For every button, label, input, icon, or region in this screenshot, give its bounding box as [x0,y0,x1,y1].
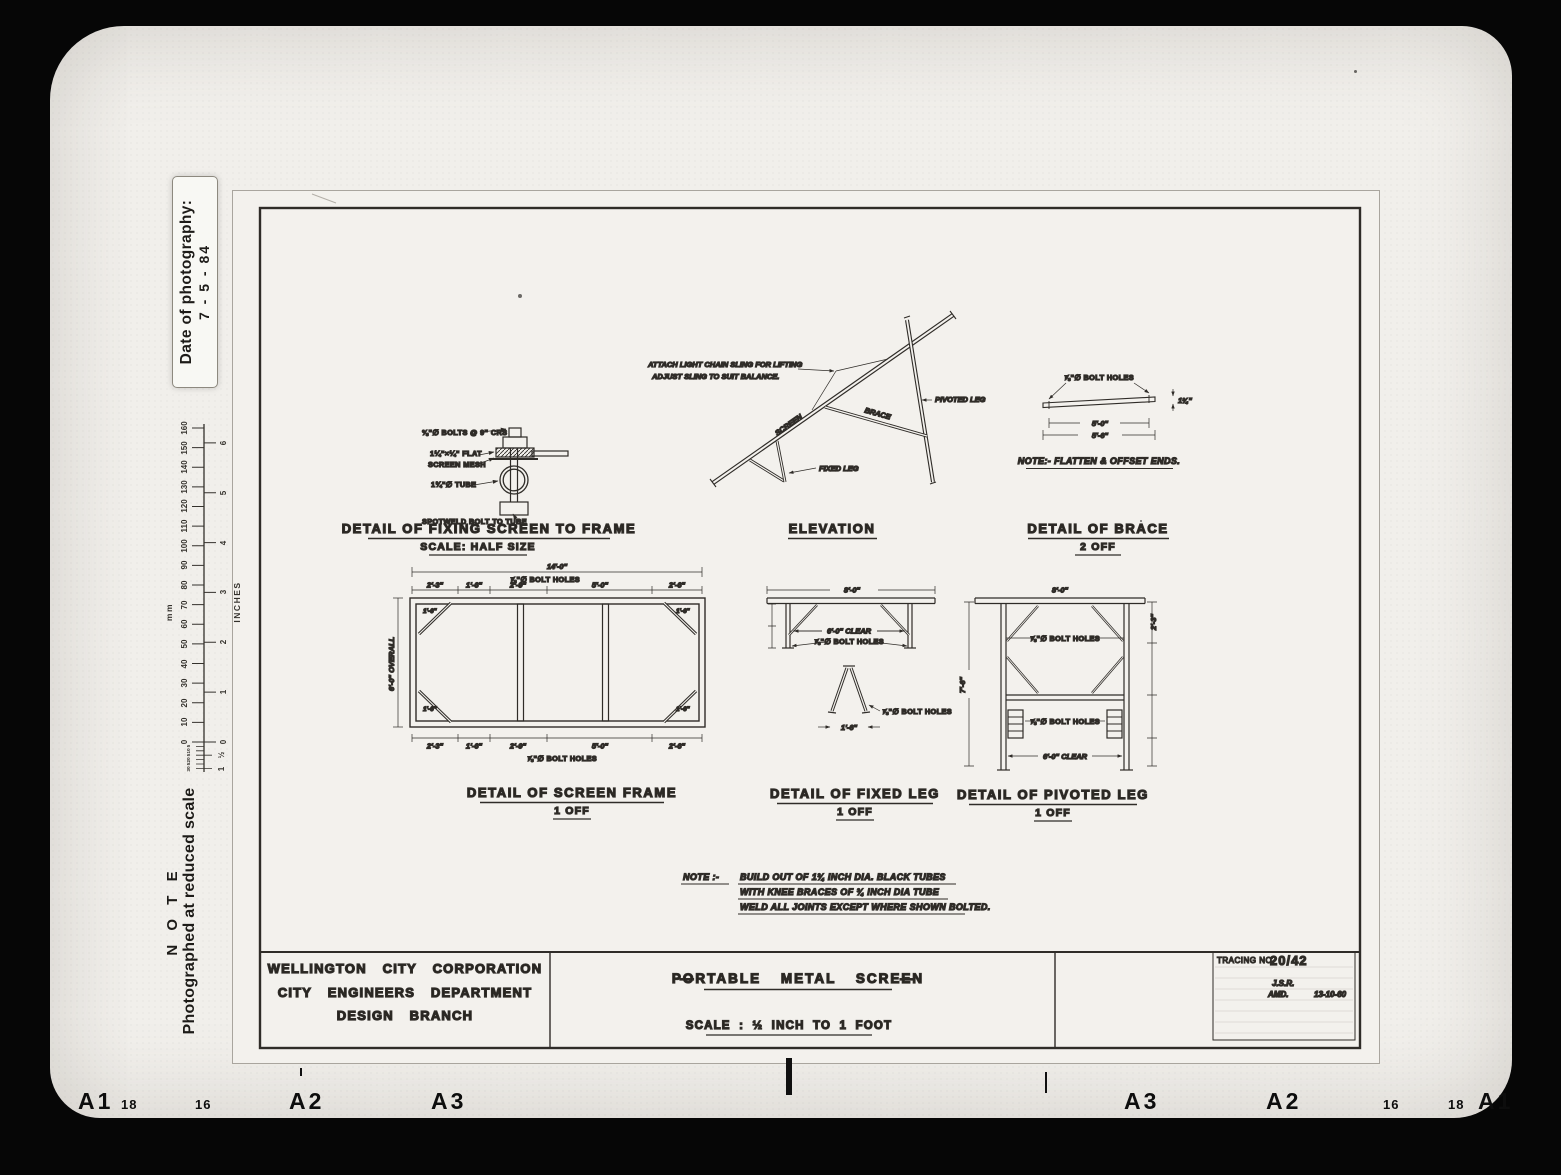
aframe-bolt-holes: ⅞"∅ BOLT HOLES [882,707,952,716]
film-edge-right-a3: A3 [1124,1088,1159,1115]
ruler-mm-60: 60 [180,619,189,628]
tracing-number: 20/42 [1270,953,1308,968]
general-note-line3: WELD ALL JOINTS EXCEPT WHERE SHOWN BOLTE… [740,902,991,912]
general-note-prefix: NOTE :- [683,872,719,882]
ruler-mm-80: 80 [180,580,189,589]
frame-seg-bot-0: 2'-3" [426,742,444,751]
sheet-border [260,194,1360,1048]
brace-note: NOTE:- FLATTEN & OFFSET ENDS. [1018,456,1180,466]
frame-seg-bot-4: 2'-6" [668,742,686,751]
ruler-labels: 0 10 20 30 40 50 60 70 80 90 100 110 120… [164,421,242,772]
film-edge-right-a2: A2 [1266,1088,1301,1115]
ruler-mm-160: 160 [180,421,189,435]
ruler-inch-6: 6 [219,440,228,445]
ruler-mm-sub-2: 5 [186,753,192,756]
screen-frame-detail: 1'-6" 1'-6" 1'-6" 1'-6" 14'-0" ⅞"∅ BOLT … [387,562,705,819]
pivoted-leg-height: 7'-6" [958,676,967,693]
fixed-leg-title: DETAIL OF FIXED LEG [770,786,940,801]
ruler-mm-70: 70 [180,600,189,609]
tracing-amendment: AMD. [1267,990,1288,999]
frame-seg-bot-2: 2'-9" [509,742,527,751]
fixed-leg-width: 8'-0" [844,586,861,595]
fixing-callout-mesh: SCREEN MESH [428,460,486,469]
sling-note-line1: ATTACH LIGHT CHAIN SLING FOR LIFTING [647,360,802,369]
film-edge-right-a1: A1 [1478,1088,1513,1115]
ruler-mm-sub-0: 5 [186,744,192,747]
brace-bolt-holes: ⅞"∅ BOLT HOLES [1064,373,1134,382]
drawing-title: PORTABLE METAL SCREEN [672,971,924,986]
pivoted-leg-right-dim: 2'-3" [1149,613,1158,631]
ruler-mm-150: 150 [180,441,189,455]
fixing-callout-flat: 1¼"×¼" FLAT [430,449,482,458]
brace-dim-outer: 5'-6" [1092,431,1109,440]
org-line1: WELLINGTON CITY CORPORATION [268,961,543,976]
registration-tick-left [300,1068,302,1076]
elevation-label-pivoted-leg: PIVOTED LEG [935,395,986,404]
brace-dim-thickness: 1¾" [1178,396,1192,405]
ruler-mm-90: 90 [180,560,189,569]
ruler-inch-3: 3 [219,589,228,594]
drawing-sheet-content: ⅜"∅ BOLTS @ 9" CRS 1¼"×¼" FLAT SCREEN ME… [232,190,1378,1062]
sling-note-line2: ADJUST SLING TO SUIT BALANCE. [651,372,779,381]
ruler-mm-sub-3: 20 [186,757,192,763]
ruler-mm-sub-1: 10 [186,748,192,754]
note-text: Photographed at reduced scale [181,780,199,1042]
org-line3: DESIGN BRANCH [337,1008,473,1023]
title-block: WELLINGTON CITY CORPORATION CITY ENGINEE… [268,952,1355,1040]
fixing-detail: ⅜"∅ BOLTS @ 9" CRS 1¼"×¼" FLAT SCREEN ME… [342,428,637,555]
pivoted-leg-detail: 8'-0" ⅞"∅ BOLT HOLES ⅞"∅ BOLT HOLES 6'-0… [957,586,1158,822]
ruler-mm-30: 30 [180,678,189,687]
film-edge-right-16: 16 [1383,1097,1399,1112]
ruler-inch-4: 4 [219,540,228,545]
film-edge-right-18: 18 [1448,1097,1464,1112]
tracing-box: TRACING NO. 20/42 J.S.R. AMD. 13-10-60 [1213,952,1355,1040]
brace-subtitle: 2 OFF [1080,541,1116,553]
ruler-mm-130: 130 [180,480,189,494]
elevation-title: ELEVATION [789,521,876,536]
film-edge-left-18: 18 [121,1097,137,1112]
ruler-mm-0: 0 [180,739,189,744]
tracing-label: TRACING NO. [1217,956,1275,965]
fixing-title: DETAIL OF FIXING SCREEN TO FRAME [342,521,637,536]
scan-speck [518,294,522,298]
frame-seg-top-4: 2'-6" [668,581,686,590]
frame-corner-dim-br: 1'-6" [676,706,691,713]
frame-bolt-holes-bottom: ⅞"∅ BOLT HOLES [527,754,597,763]
ruler-mm-20: 20 [180,698,189,707]
fixing-subtitle: SCALE: HALF SIZE [420,541,535,553]
pivoted-leg-clear: 6'-0" CLEAR [1043,752,1088,761]
title-dash-right: — [900,971,916,986]
general-note: NOTE :- BUILD OUT OF 1¾ INCH DIA. BLACK … [681,872,991,914]
ruler-inch-1: 1 [219,689,228,694]
ruler-inch-0: 0 [219,739,228,744]
org-line2: CITY ENGINEERS DEPARTMENT [278,985,532,1000]
general-note-line1: BUILD OUT OF 1¾ INCH DIA. BLACK TUBES [740,872,946,882]
note-heading: N O T E [164,780,181,1042]
frame-corner-dim-tl: 1'-6" [423,608,438,615]
fixed-leg-bolt-holes: ⅞"∅ BOLT HOLES [814,637,884,646]
registration-mark-center [786,1058,792,1095]
pivoted-leg-width: 8'-0" [1052,586,1069,595]
ruler-mm-120: 120 [180,499,189,513]
fixed-leg-clear: 6'-0" CLEAR [827,627,872,636]
fixing-callout-tube: 1¾"∅ TUBE [431,480,476,489]
date-of-photography-sticker: Date of photography: 7 - 5 - 84 [172,176,218,388]
microfilm-scan: ⅜"∅ BOLTS @ 9" CRS 1¼"×¼" FLAT SCREEN ME… [0,0,1561,1175]
ruler-mm-sub-5: 30 [186,766,192,772]
ruler-mm-100: 100 [180,539,189,553]
general-note-line2: WITH KNEE BRACES OF ¾ INCH DIA TUBE [740,887,940,897]
ruler-inches-label: INCHES [232,581,242,622]
frame-seg-top-0: 2'-3" [426,581,444,590]
film-edge-left-a2: A2 [289,1088,324,1115]
frame-seg-top-2: 2'-9" [509,581,527,590]
film-edge-left-16: 16 [195,1097,211,1112]
frame-corner-dim-bl: 1'-6" [423,706,438,713]
tracing-initials: J.S.R. [1272,979,1294,988]
frame-overall-height: 6'-0" OVERALL [387,637,396,692]
scan-speck [1354,70,1357,73]
ruler-mm-50: 50 [180,639,189,648]
pivoted-leg-title: DETAIL OF PIVOTED LEG [957,787,1149,802]
pivoted-leg-bolt-holes-lower: ⅞"∅ BOLT HOLES [1030,717,1100,726]
frame-seg-bot-3: 5'-0" [592,742,609,751]
frame-seg-bot-1: 1'-6" [466,742,483,751]
ruler-mm-sub-4: 5 [186,762,192,765]
pivoted-leg-bolt-holes-mid: ⅞"∅ BOLT HOLES [1030,634,1100,643]
ruler-mm-140: 140 [180,460,189,474]
elevation-label-fixed-leg: FIXED LEG [819,464,859,473]
scale-ruler: 0 10 20 30 40 50 60 70 80 90 100 110 120… [158,412,250,812]
ruler-mm-110: 110 [180,519,189,532]
brace-dim-inner: 5'-0" [1092,419,1109,428]
brace-detail: ⅞"∅ BOLT HOLES 5'-0" 5'-6" 1¾" NOTE:- FL… [1018,373,1193,555]
ru­ler-inch-sub-1: 1 [217,766,226,771]
frame-seg-top-3: 5'-0" [592,581,609,590]
frame-seg-top-1: 1'-6" [466,581,483,590]
fixed-leg-subtitle: 1 OFF [837,806,873,818]
pivoted-leg-subtitle: 1 OFF [1035,807,1071,819]
frame-corner-dim-tr: 1'-6" [676,608,691,615]
frame-title: DETAIL OF SCREEN FRAME [467,785,677,800]
brace-title: DETAIL OF BRACE [1027,521,1168,536]
film-edge-left-a3: A3 [431,1088,466,1115]
fixed-leg-detail: 8'-0" 6'-0" CLEAR ⅞"∅ BOLT HOLES [767,586,952,821]
ruler-mm-40: 40 [180,659,189,668]
scan-speck [1140,520,1142,522]
date-value: 7 - 5 - 84 [196,184,212,380]
date-label: Date of photography: [178,184,196,380]
frame-subtitle: 1 OFF [554,805,590,817]
fixing-callout-bolts: ⅜"∅ BOLTS @ 9" CRS [422,428,507,437]
ruler-mm-10: 10 [180,717,189,726]
ruler-mm-label: mm [164,603,174,621]
ruler-inch-sub-0: ½ [217,751,226,758]
reduced-scale-note-sticker: N O T E Photographed at reduced scale [164,780,199,1042]
film-edge-left-a1: A1 [78,1088,113,1115]
ruler-inch-5: 5 [219,490,228,495]
registration-mark-right [1045,1072,1047,1093]
elevation-view: ATTACH LIGHT CHAIN SLING FOR LIFTING ADJ… [647,311,986,539]
aframe-base-dim: 1'-6" [841,723,858,732]
scale-note: SCALE : ½ INCH TO 1 FOOT [686,1020,893,1032]
ruler-inch-2: 2 [219,639,228,644]
tracing-amendment-date: 13-10-60 [1314,990,1347,999]
frame-overall-width: 14'-0" [547,562,568,571]
